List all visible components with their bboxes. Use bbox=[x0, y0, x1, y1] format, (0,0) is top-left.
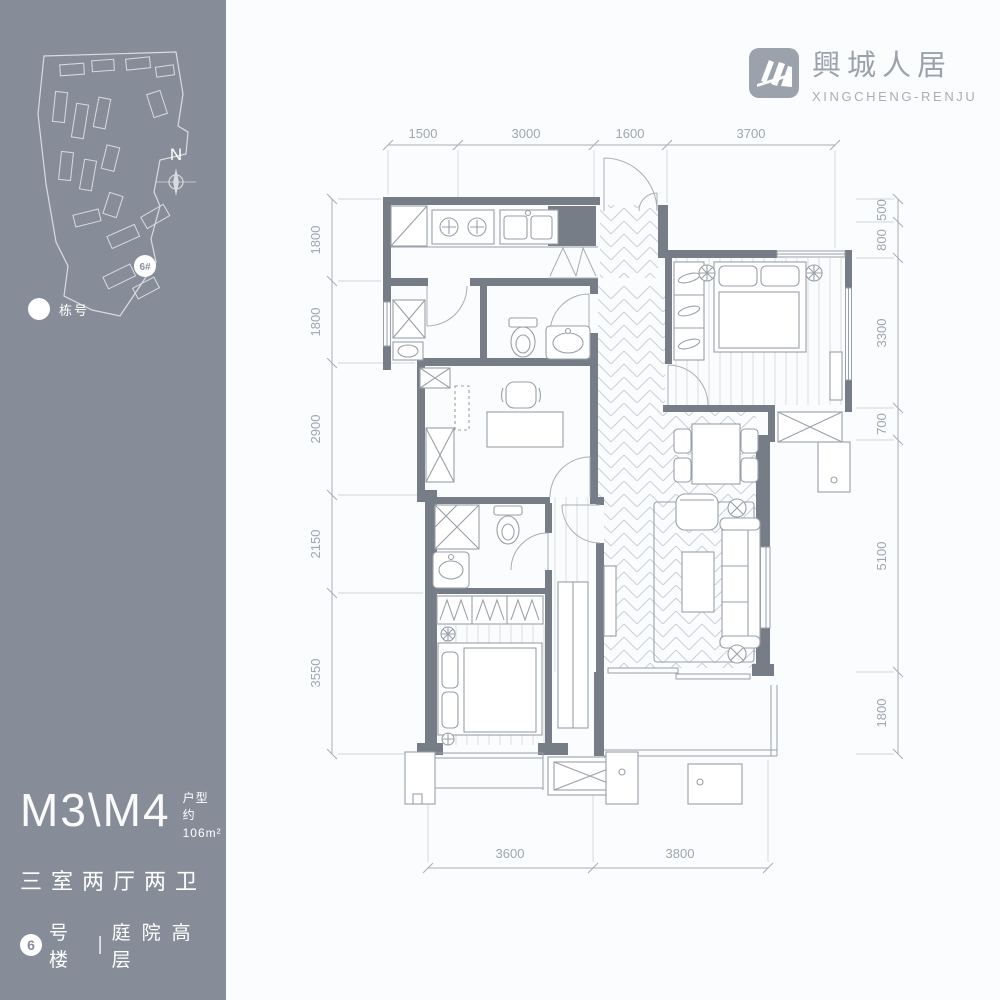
walkin-closet bbox=[558, 582, 588, 728]
left-panel: N 6# 栋号 M3\M4 户型 约106m² 三室两厅两卫 6 号楼 | 庭院… bbox=[0, 0, 226, 1000]
floor-plan: 1500 3000 1600 3700 1800 1800 2900 2150 … bbox=[290, 100, 990, 920]
sofa bbox=[720, 518, 760, 648]
brand-header: 興城人居 XINGCHENG-RENJU bbox=[748, 42, 977, 104]
wardrobe-row bbox=[437, 596, 543, 624]
dim-left-0: 1800 bbox=[308, 226, 323, 255]
bathroom1 bbox=[509, 318, 590, 359]
dim-right bbox=[893, 194, 903, 759]
desk bbox=[487, 412, 563, 447]
kitchen-double-door bbox=[548, 248, 598, 278]
pillow bbox=[442, 692, 458, 728]
east-bay-ac bbox=[778, 412, 850, 492]
building-label: 号楼 bbox=[49, 918, 89, 972]
compass-icon bbox=[156, 168, 196, 196]
laundry-door bbox=[427, 286, 467, 326]
bedroom1-east-window bbox=[846, 288, 852, 380]
pillow bbox=[761, 266, 799, 286]
compass-north-label: N bbox=[170, 145, 182, 164]
double-bed bbox=[714, 262, 806, 352]
dim-right-2: 3300 bbox=[874, 319, 889, 348]
dining-table bbox=[692, 424, 740, 484]
study-door bbox=[550, 457, 590, 497]
toilet-icon bbox=[494, 506, 522, 544]
dim-right-3: 700 bbox=[874, 413, 889, 435]
dim-bottom-0: 3600 bbox=[496, 846, 525, 861]
ceiling-light-icon bbox=[441, 627, 455, 641]
dim-right-4: 5100 bbox=[874, 542, 889, 571]
tv-cabinet bbox=[604, 566, 616, 636]
unit-building-row: 6 号楼 | 庭院高层 bbox=[20, 918, 215, 972]
unit-type-label: 户型 bbox=[183, 790, 222, 807]
floor-lamp-icon bbox=[728, 499, 746, 517]
bookshelf bbox=[455, 386, 469, 430]
ceiling-light-icon bbox=[442, 733, 454, 745]
kitchen-sink-icon bbox=[500, 210, 558, 244]
dim-top bbox=[383, 140, 840, 150]
desk-chair bbox=[502, 382, 541, 408]
legend-label: 栋号 bbox=[59, 300, 89, 319]
unit-area: 约106m² bbox=[183, 807, 222, 842]
pillow bbox=[442, 652, 458, 688]
chair bbox=[741, 429, 758, 453]
study-room bbox=[420, 368, 563, 482]
dim-top-3: 3700 bbox=[737, 126, 766, 141]
unit-info: M3\M4 户型 约106m² 三室两厅两卫 6 号楼 | 庭院高层 bbox=[20, 787, 215, 972]
dim-right-1: 800 bbox=[874, 229, 889, 251]
vanity-sink-icon bbox=[433, 552, 469, 588]
brand-logo-icon bbox=[748, 47, 800, 99]
laundry-window bbox=[384, 302, 391, 346]
console bbox=[830, 352, 842, 400]
brand-name-cn: 興城人居 bbox=[812, 42, 977, 84]
armchair bbox=[676, 494, 718, 530]
dim-top-2: 1600 bbox=[616, 126, 645, 141]
site-legend: 栋号 bbox=[28, 298, 89, 320]
bathroom2 bbox=[433, 505, 522, 588]
coffee-table bbox=[682, 552, 714, 612]
entry-door bbox=[604, 158, 657, 211]
bedroom1-north-window bbox=[777, 251, 845, 257]
legend-dot-icon bbox=[28, 298, 50, 320]
chair bbox=[741, 458, 758, 482]
feature-label: 庭院高层 bbox=[112, 918, 215, 972]
dim-bottom bbox=[423, 863, 773, 873]
double-bed bbox=[438, 643, 542, 735]
building-6-marker-label: 6# bbox=[139, 262, 151, 273]
dim-left-4: 3550 bbox=[308, 659, 323, 688]
dim-left-3: 2150 bbox=[308, 530, 323, 559]
vanity-sink-icon bbox=[546, 326, 590, 359]
floor-lamp-icon bbox=[728, 645, 746, 663]
chair bbox=[674, 429, 691, 453]
divider: | bbox=[96, 934, 105, 956]
bedroom2-bay-window bbox=[428, 753, 543, 790]
unit-rooms: 三室两厅两卫 bbox=[20, 864, 215, 896]
dim-left-1: 1800 bbox=[308, 308, 323, 337]
dim-left-2: 2900 bbox=[308, 415, 323, 444]
dim-bottom-1: 3800 bbox=[666, 846, 695, 861]
site-plan: N 6# bbox=[8, 34, 218, 334]
balcony-railing bbox=[604, 685, 777, 756]
shower-icon bbox=[435, 505, 479, 549]
toilet-icon bbox=[509, 318, 537, 357]
pillow bbox=[719, 266, 757, 286]
building-number-badge: 6 bbox=[20, 934, 42, 956]
ceiling-light-icon bbox=[699, 265, 715, 281]
dim-right-0: 500 bbox=[874, 199, 889, 221]
laundry-room bbox=[393, 300, 425, 360]
unit-code: M3\M4 bbox=[20, 787, 171, 833]
dim-right-5: 1800 bbox=[874, 699, 889, 728]
dim-top-1: 3000 bbox=[512, 126, 541, 141]
chair bbox=[674, 458, 691, 482]
stove-icon bbox=[432, 210, 494, 244]
dim-top-0: 1500 bbox=[409, 126, 438, 141]
balcony-sliding-door bbox=[608, 668, 750, 679]
bedroom2 bbox=[438, 627, 542, 745]
ceiling-light-icon bbox=[806, 265, 822, 281]
dim-left bbox=[327, 194, 337, 759]
foyer-floor bbox=[600, 205, 658, 278]
